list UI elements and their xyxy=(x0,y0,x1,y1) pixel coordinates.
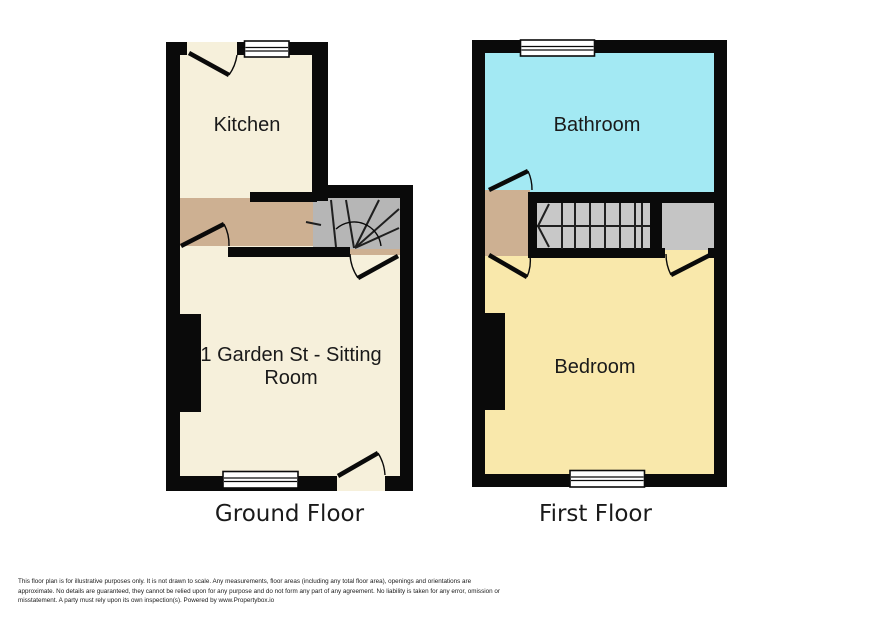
wall xyxy=(529,248,665,258)
bathroom-window xyxy=(521,40,595,56)
first-floor-caption: First Floor xyxy=(470,501,721,527)
cupboard-area xyxy=(656,199,716,250)
wall xyxy=(250,192,317,202)
wall xyxy=(472,40,485,487)
front-door-opening xyxy=(337,476,385,491)
window-frame xyxy=(521,40,595,56)
chimney-breast xyxy=(168,314,201,412)
disclaimer-line-1: This floor plan is for illustrative purp… xyxy=(18,577,500,587)
ground-floor-caption: Ground Floor xyxy=(164,501,415,527)
sitting-room-window xyxy=(223,472,298,489)
sitting-room-label-line2: Room xyxy=(264,367,317,389)
disclaimer-line-3: misstatement. A party must rely upon its… xyxy=(18,596,500,606)
wall xyxy=(400,185,413,491)
kitchen-window xyxy=(245,41,290,57)
wall xyxy=(529,192,714,203)
ground-floor-plan: Kitchen 1 Garden St - Sitting Room xyxy=(166,41,413,491)
bedroom-label: Bedroom xyxy=(554,356,635,378)
wall xyxy=(714,40,727,487)
disclaimer-text: This floor plan is for illustrative purp… xyxy=(18,577,500,606)
window-frame xyxy=(223,472,298,489)
kitchen-label: Kitchen xyxy=(214,114,281,136)
bathroom-label: Bathroom xyxy=(554,114,641,136)
floor-plan-page: Kitchen 1 Garden St - Sitting Room xyxy=(0,0,886,620)
wall xyxy=(312,42,328,201)
hallway-floor xyxy=(174,198,318,251)
disclaimer-line-2: approximate. No details are guaranteed, … xyxy=(18,587,500,597)
kitchen-door-opening xyxy=(187,42,237,55)
window-frame xyxy=(245,41,290,57)
first-floor-plan: Bathroom Bedroom xyxy=(472,40,727,487)
wall xyxy=(166,42,180,491)
chimney-breast xyxy=(474,313,505,410)
wall xyxy=(325,185,413,198)
landing-floor xyxy=(479,190,530,256)
sitting-room-label-line1: 1 Garden St - Sitting xyxy=(200,344,381,366)
window-frame xyxy=(570,471,645,488)
bedroom-window xyxy=(570,471,645,488)
wall xyxy=(228,247,350,257)
wall xyxy=(472,40,727,53)
floor-plan-drawing: Kitchen 1 Garden St - Sitting Room xyxy=(0,0,886,620)
